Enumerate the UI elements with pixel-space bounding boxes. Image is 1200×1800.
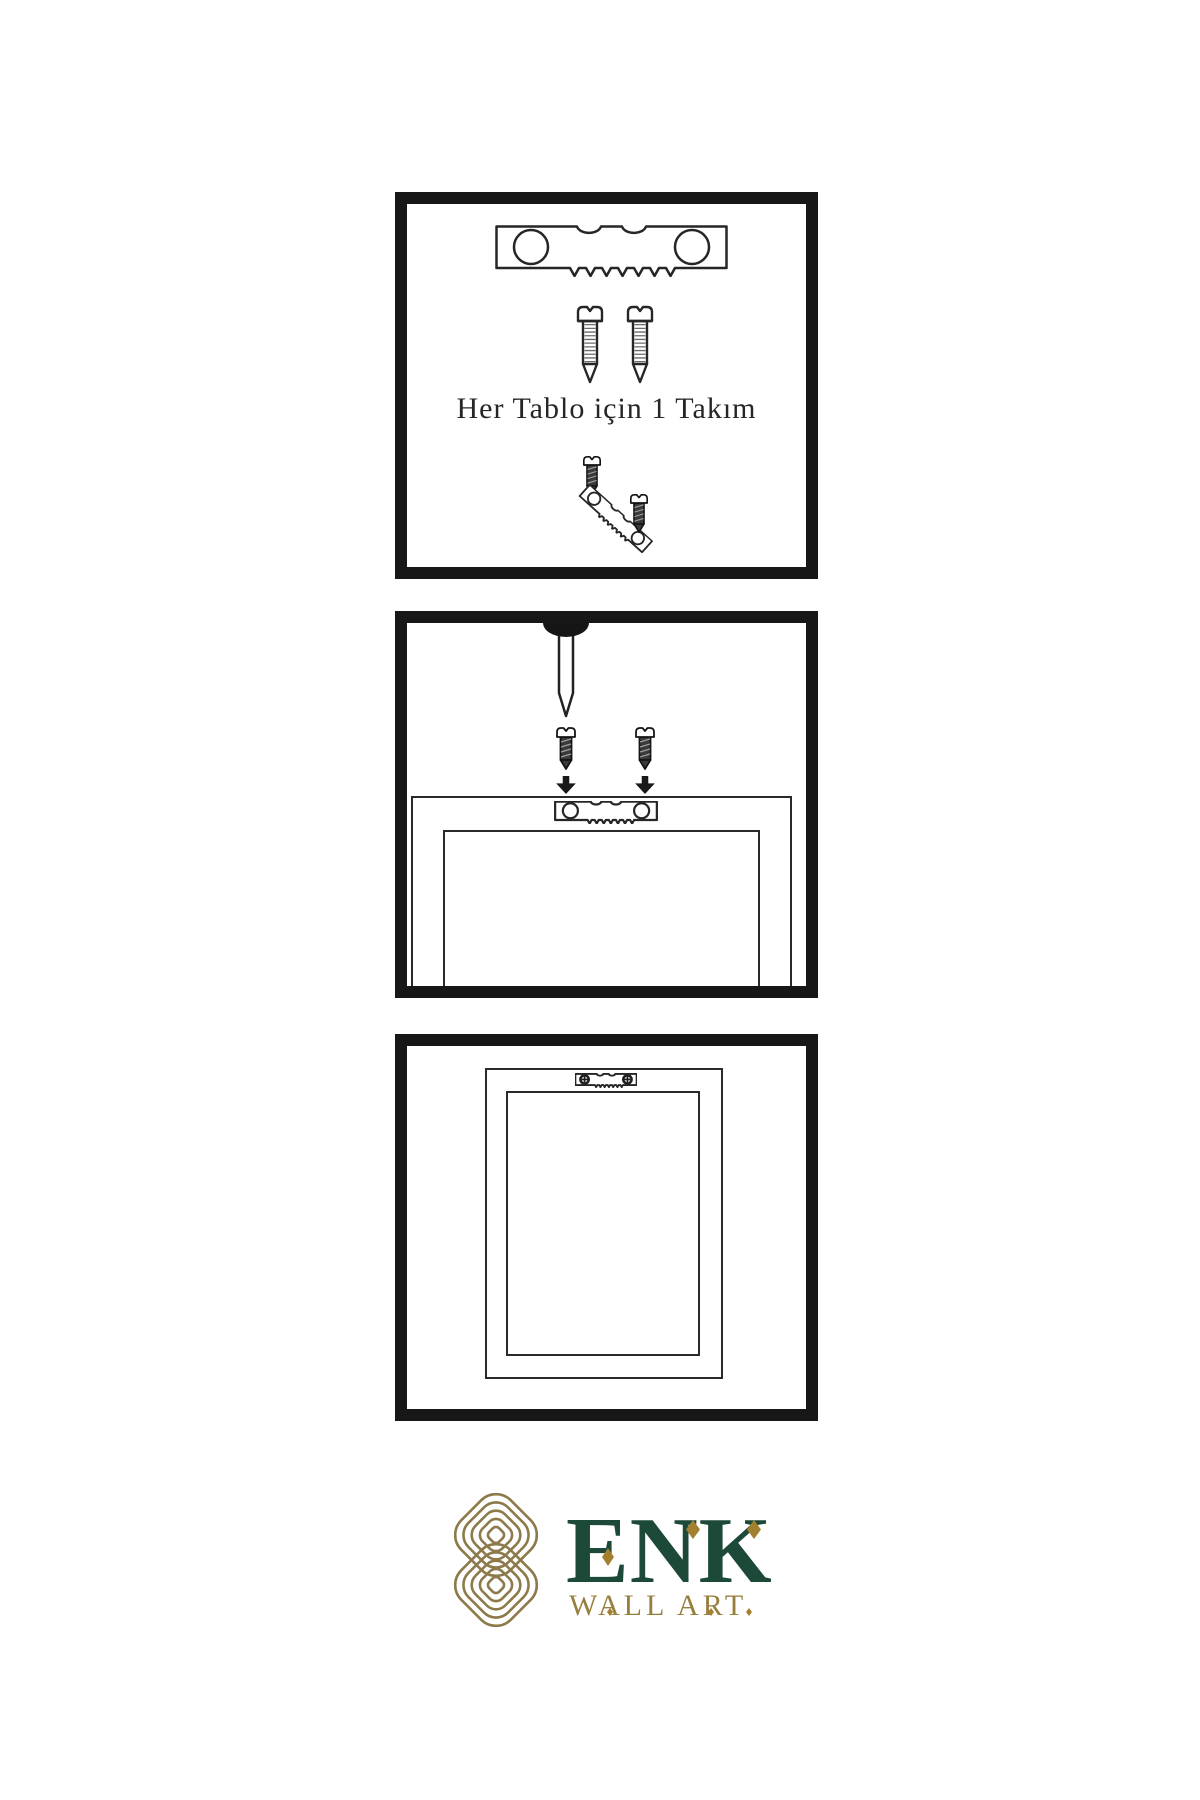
panel-caption: Her Tablo için 1 Takım: [407, 392, 806, 426]
dark-screw-icon: [555, 723, 577, 773]
arrow-down-icon: [555, 776, 577, 794]
dark-screw-icon: [634, 723, 656, 773]
dark-screw-icon: [629, 492, 649, 534]
panel-hung-frame: [395, 1034, 818, 1421]
brand-tagline: WALL ART: [569, 1590, 747, 1622]
mounted-sawtooth-hanger-icon: [575, 1073, 637, 1088]
phillips-screw-icon: [581, 1076, 588, 1083]
arrow-down-icon: [634, 776, 656, 794]
screw-icon: [575, 303, 605, 385]
brand-name: ENK: [566, 1504, 773, 1598]
sawtooth-hanger-icon: [495, 225, 728, 277]
panel-nail-step: [395, 611, 818, 998]
knot-logo-icon: [436, 1490, 556, 1630]
screw-icon: [625, 303, 655, 385]
sawtooth-hanger-icon: [554, 801, 658, 824]
panel-hardware-set: Her Tablo için 1 Takım: [395, 192, 818, 579]
brand-logo: ENK WALL ART: [436, 1490, 816, 1660]
instruction-sheet: { "page": {"background": "#ffffff"}, "pa…: [0, 0, 1200, 1800]
nail-icon: [541, 623, 591, 719]
frame-back-opening: [443, 830, 760, 998]
phillips-screw-icon: [624, 1076, 631, 1083]
frame-opening: [506, 1091, 700, 1356]
